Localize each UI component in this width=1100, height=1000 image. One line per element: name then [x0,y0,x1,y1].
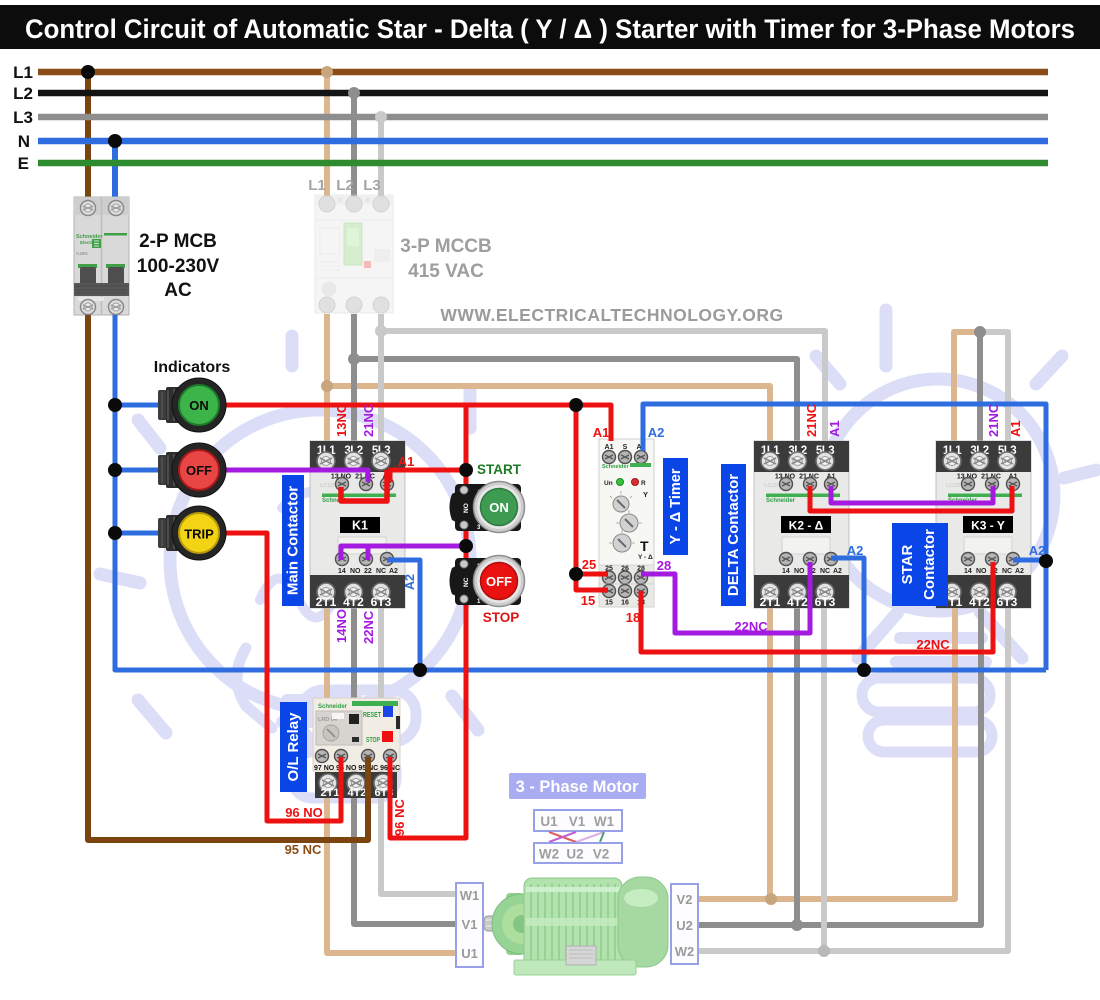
svg-text:OFF: OFF [186,463,212,478]
svg-text:RESET: RESET [363,712,382,719]
svg-text:Main Contactor: Main Contactor [285,486,302,595]
svg-text:L1: L1 [308,177,326,194]
svg-text:K3 - Y: K3 - Y [971,519,1005,533]
svg-text:18: 18 [626,610,640,625]
svg-text:T: T [640,538,649,554]
svg-text:15: 15 [581,593,595,608]
svg-text:2T1: 2T1 [321,787,340,799]
svg-text:V2: V2 [677,892,693,907]
svg-text:W1: W1 [460,888,480,903]
svg-text:V1: V1 [462,917,478,932]
svg-text:W2: W2 [675,944,695,959]
svg-text:Control Circuit of Automatic S: Control Circuit of Automatic Star - Delt… [25,14,1075,44]
svg-text:21NC: 21NC [361,403,376,437]
svg-text:TRIP: TRIP [184,527,214,542]
svg-text:A2: A2 [648,425,665,440]
svg-text:21NC: 21NC [804,403,819,437]
svg-text:AC: AC [164,280,192,301]
svg-text:25: 25 [582,557,596,572]
svg-text:A2: A2 [847,543,864,558]
svg-text:DELTA Contactor: DELTA Contactor [725,474,742,596]
svg-text:28: 28 [657,558,671,573]
svg-text:3-P MCCB: 3-P MCCB [400,236,492,257]
svg-text:L3: L3 [13,108,33,127]
svg-text:V1: V1 [569,814,586,829]
svg-text:STOP: STOP [483,610,520,625]
svg-text:START: START [477,462,522,477]
svg-text:ON: ON [489,500,509,515]
svg-text:NO: NO [463,503,470,513]
svg-text:Contactor: Contactor [921,529,938,600]
svg-text:R: R [641,480,646,487]
svg-text:21NC: 21NC [986,403,1001,437]
svg-text:22NC: 22NC [916,637,950,652]
svg-text:L1: L1 [13,63,33,82]
svg-text:A2: A2 [403,574,417,590]
svg-text:STAR: STAR [899,544,916,584]
svg-text:96 NO: 96 NO [285,805,323,820]
svg-text:Y - Δ Timer: Y - Δ Timer [668,468,684,544]
svg-text:Y: Y [643,490,648,499]
svg-text:NC: NC [463,577,470,587]
svg-text:STOP: STOP [366,737,380,744]
svg-text:W2: W2 [539,847,559,862]
svg-text:A1: A1 [593,425,610,440]
svg-text:22NC: 22NC [734,619,768,634]
svg-text:415 VAC: 415 VAC [408,261,484,282]
svg-text:13NO: 13NO [334,403,349,437]
svg-text:A1: A1 [398,454,415,469]
svg-text:N: N [18,132,30,151]
svg-text:16: 16 [621,600,629,607]
svg-text:U1: U1 [540,814,558,829]
svg-text:22NC: 22NC [361,610,376,644]
svg-text:OFF: OFF [486,574,512,589]
svg-text:A1: A1 [827,420,842,437]
svg-text:K2 - Δ: K2 - Δ [789,519,824,533]
svg-text:U2: U2 [676,918,693,933]
svg-text:Indicators: Indicators [154,359,231,376]
svg-text:15: 15 [605,600,613,607]
svg-text:A1: A1 [1008,420,1023,437]
svg-text:4T2: 4T2 [348,787,367,799]
svg-text:Schneider: Schneider [602,464,629,470]
svg-text:2-P MCB: 2-P MCB [139,231,217,252]
svg-text:U2: U2 [566,847,583,862]
svg-text:K1: K1 [352,519,368,533]
svg-text:A2: A2 [1029,543,1046,558]
svg-text:ON: ON [189,398,209,413]
svg-text:L2: L2 [13,84,33,103]
svg-text:3 - Phase Motor: 3 - Phase Motor [516,778,639,796]
svg-text:O/L Relay: O/L Relay [285,712,302,782]
svg-text:L3: L3 [363,177,381,194]
svg-text:Un: Un [604,480,613,487]
svg-text:V2: V2 [593,847,610,862]
svg-text:WWW.ELECTRICALTECHNOLOGY.ORG: WWW.ELECTRICALTECHNOLOGY.ORG [440,305,783,325]
svg-text:Y - Δ: Y - Δ [638,554,653,561]
svg-text:C40N: C40N [76,251,88,256]
svg-text:100-230V: 100-230V [137,256,220,277]
svg-text:14NO: 14NO [334,609,349,643]
svg-text:W1: W1 [594,814,615,829]
svg-text:96 NC: 96 NC [392,799,407,836]
svg-text:U1: U1 [461,946,478,961]
svg-text:95 NC: 95 NC [285,842,322,857]
svg-text:L2: L2 [336,177,354,194]
svg-text:E: E [18,154,29,173]
